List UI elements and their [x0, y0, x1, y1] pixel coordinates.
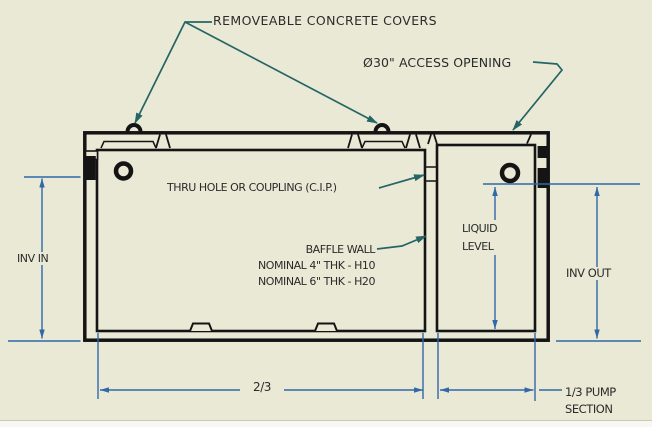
cover-recess [101, 142, 156, 149]
outlet-pipe [538, 168, 549, 188]
bottom-strip [0, 420, 652, 427]
cover-joint [406, 135, 420, 149]
label-inv-in: INV IN [15, 252, 50, 265]
thru-hole-circle [116, 164, 131, 179]
baffle-wall-shape [426, 166, 436, 183]
lifting-hook-icon [128, 125, 141, 131]
lifting-hook-icon [376, 125, 389, 131]
nominal-6-line: NOMINAL 6" THK - H20 [233, 274, 375, 290]
covers-leader-right [185, 22, 377, 123]
access-opening-slot [434, 135, 529, 144]
label-inv-out: INV OUT [564, 267, 613, 280]
left-chamber [97, 150, 425, 331]
thru-hole-circle [502, 165, 518, 181]
label-dim-pump-section: 1/3 PUMP SECTION [565, 384, 616, 417]
label-access-opening: Ø30" ACCESS OPENING [363, 56, 511, 69]
baffle-wall-line: BAFFLE WALL [233, 242, 375, 258]
pump-line: 1/3 PUMP [565, 384, 616, 401]
covers-leader-left [135, 22, 212, 123]
label-baffle-wall-note: BAFFLE WALL NOMINAL 4" THK - H10 NOMINAL… [233, 242, 375, 289]
outlet-joint [538, 146, 549, 158]
label-liquid-level: LIQUID LEVEL [460, 220, 499, 255]
drawing-canvas: REMOVEABLE CONCRETE COVERS Ø30" ACCESS O… [0, 0, 652, 427]
nominal-4-line: NOMINAL 4" THK - H10 [233, 258, 375, 274]
cover-recess [362, 142, 405, 149]
inlet-pipe [85, 156, 96, 180]
cover-joint [156, 135, 170, 149]
label-dim-two-thirds: 2/3 [240, 381, 284, 394]
liquid-line: LIQUID [462, 220, 497, 238]
access-opening-leader [513, 62, 562, 130]
cover-joint [348, 135, 362, 149]
section-line: SECTION [565, 401, 616, 418]
level-line: LEVEL [462, 238, 497, 256]
tank-section-svg [0, 0, 652, 427]
label-thru-hole: THRU HOLE OR COUPLING (C.I.P.) [167, 181, 337, 194]
label-removeable-covers: REMOVEABLE CONCRETE COVERS [213, 14, 437, 27]
